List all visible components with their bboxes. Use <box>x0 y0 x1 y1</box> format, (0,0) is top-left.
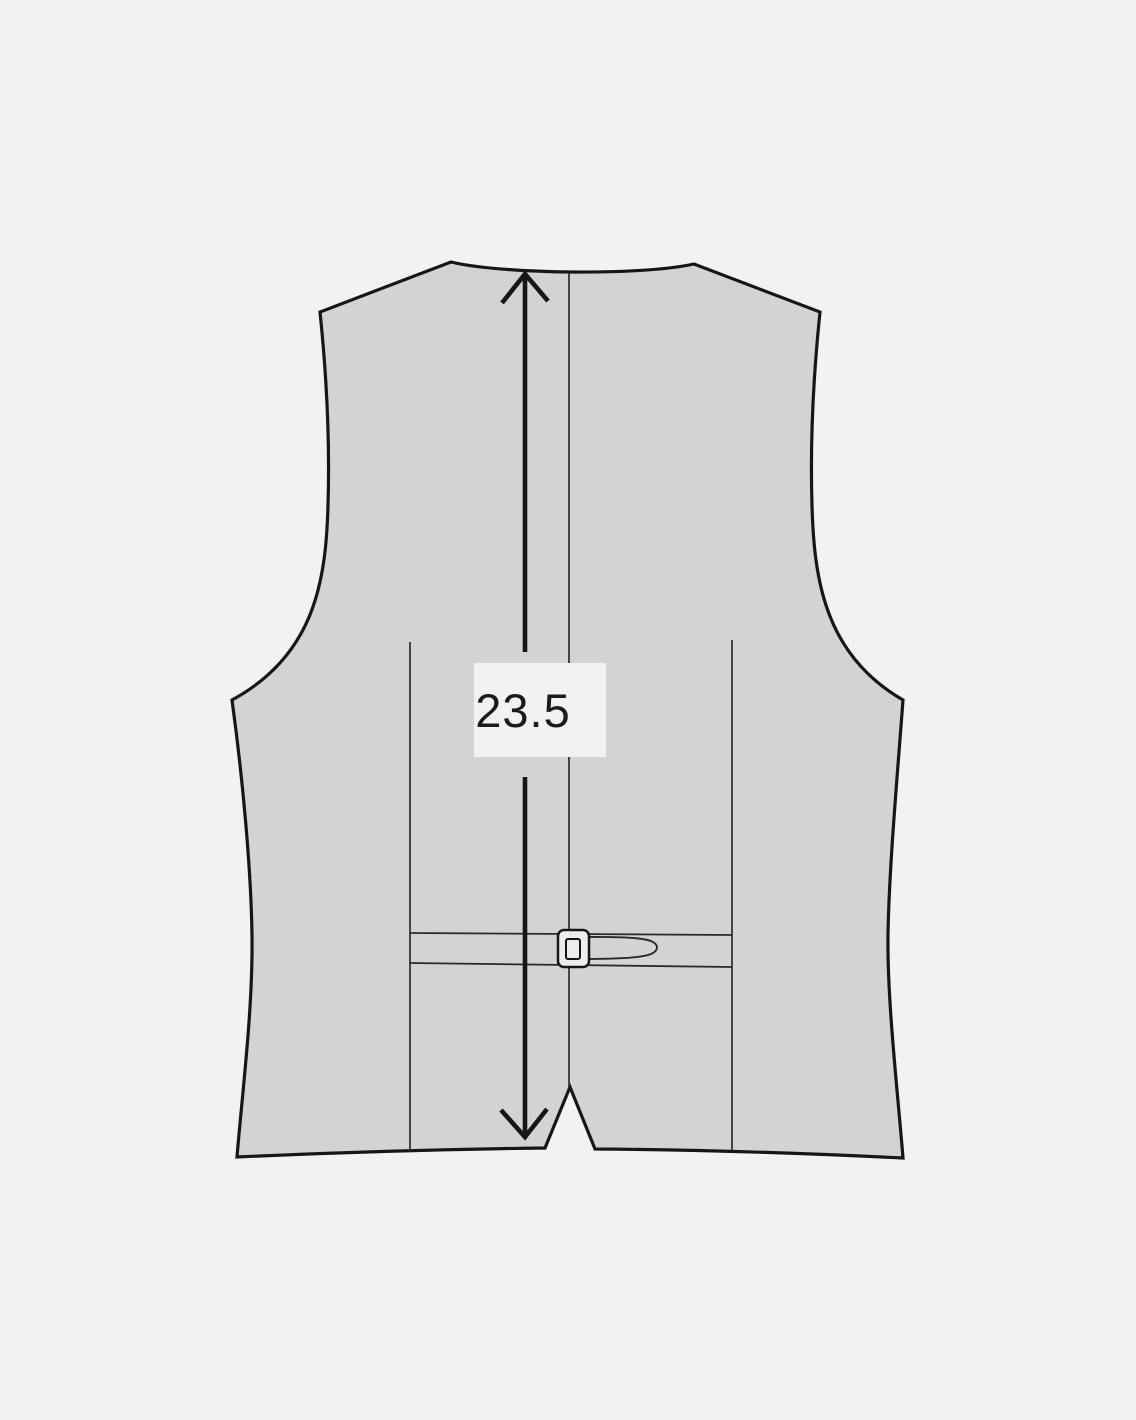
measurement-label: 23.5 <box>475 684 570 737</box>
vest-back-diagram: 23.5 <box>0 0 1136 1420</box>
adjuster-strap-tongue <box>586 937 657 959</box>
vest-back-technical-drawing: 23.5 <box>0 0 1136 1420</box>
adjuster-buckle-slot <box>566 939 580 959</box>
